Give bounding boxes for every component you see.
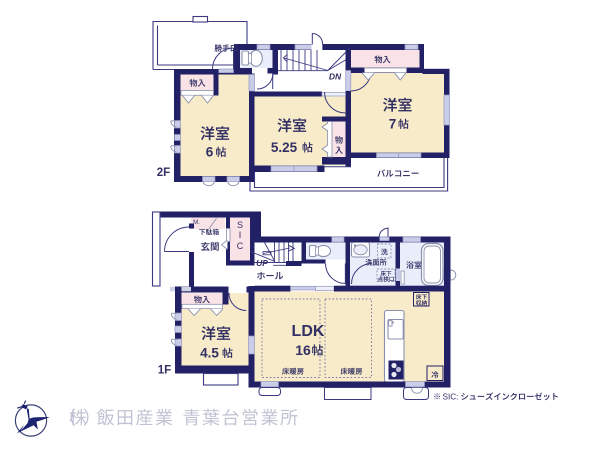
svg-text:7: 7 (389, 117, 397, 132)
svg-text:SIC:: SIC: (443, 393, 459, 402)
svg-text:5.25: 5.25 (271, 140, 298, 155)
svg-text:1F: 1F (158, 365, 171, 377)
svg-text:2F: 2F (157, 167, 170, 179)
svg-text:I: I (239, 230, 242, 240)
svg-text:UP: UP (256, 258, 268, 268)
svg-text:4.5: 4.5 (200, 346, 219, 361)
svg-text:DN: DN (329, 72, 342, 82)
svg-text:C: C (237, 241, 244, 251)
svg-text:M.: M. (193, 219, 200, 226)
svg-text:6: 6 (206, 145, 214, 160)
svg-text:16: 16 (295, 342, 311, 358)
svg-text:S: S (237, 220, 243, 230)
svg-text:LDK: LDK (292, 323, 325, 340)
